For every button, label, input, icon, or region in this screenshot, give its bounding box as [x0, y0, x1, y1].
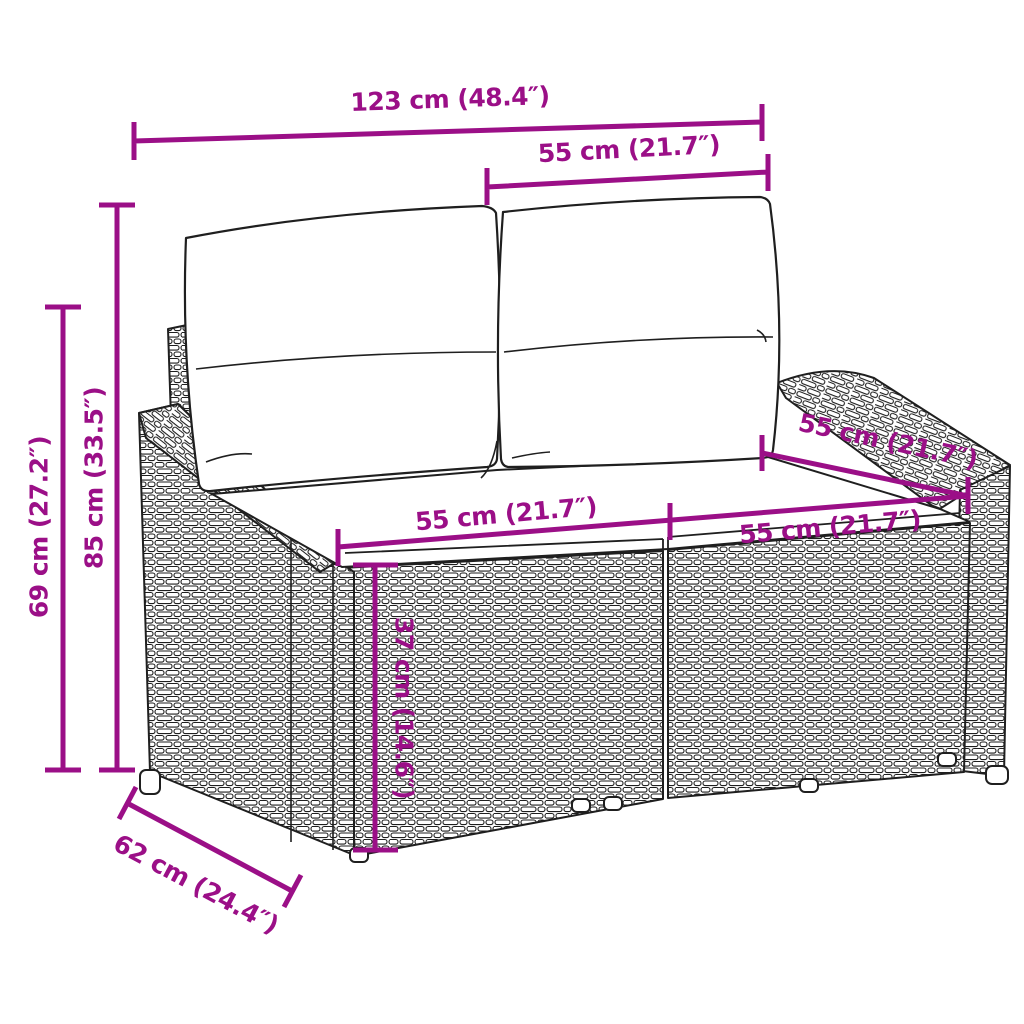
dim-label-width-total: 123 cm (48.4″)	[350, 83, 550, 115]
seat-base-right	[668, 523, 970, 798]
dim-label-arm-height: 69 cm (27.2″)	[27, 436, 52, 618]
dim-label-height-total: 85 cm (33.5″)	[82, 387, 107, 569]
dim-label-seat-height: 37 cm (14.6″)	[392, 617, 417, 799]
back-cushion-left	[185, 206, 500, 491]
back-cushion-right	[498, 197, 779, 467]
diagram-canvas: 123 cm (48.4″) 55 cm (21.7″) 85 cm (33.5…	[0, 0, 1024, 1024]
